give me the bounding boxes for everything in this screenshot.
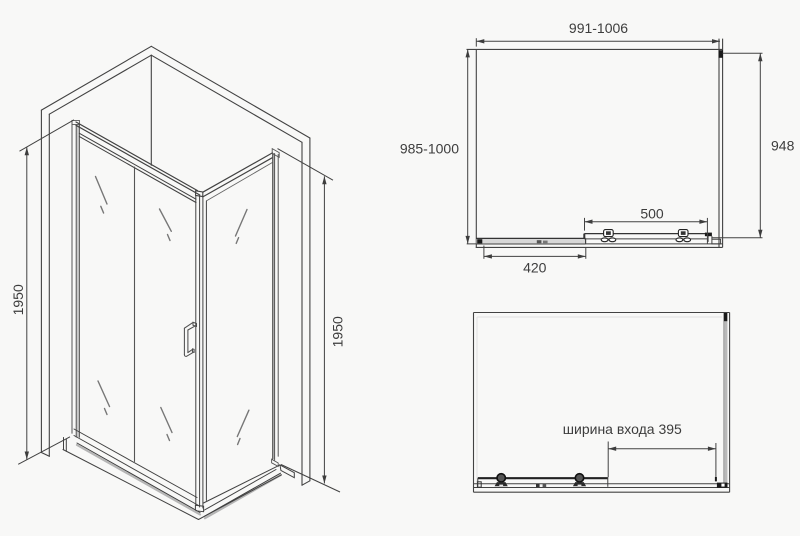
svg-text:500: 500: [640, 205, 664, 221]
svg-text:985-1000: 985-1000: [400, 141, 459, 157]
svg-text:1950: 1950: [329, 316, 345, 347]
svg-text:948: 948: [771, 137, 795, 153]
svg-text:1950: 1950: [10, 284, 26, 315]
svg-text:991-1006: 991-1006: [569, 20, 628, 36]
svg-text:ширина входа 395: ширина входа 395: [563, 421, 682, 437]
svg-text:420: 420: [523, 259, 547, 275]
